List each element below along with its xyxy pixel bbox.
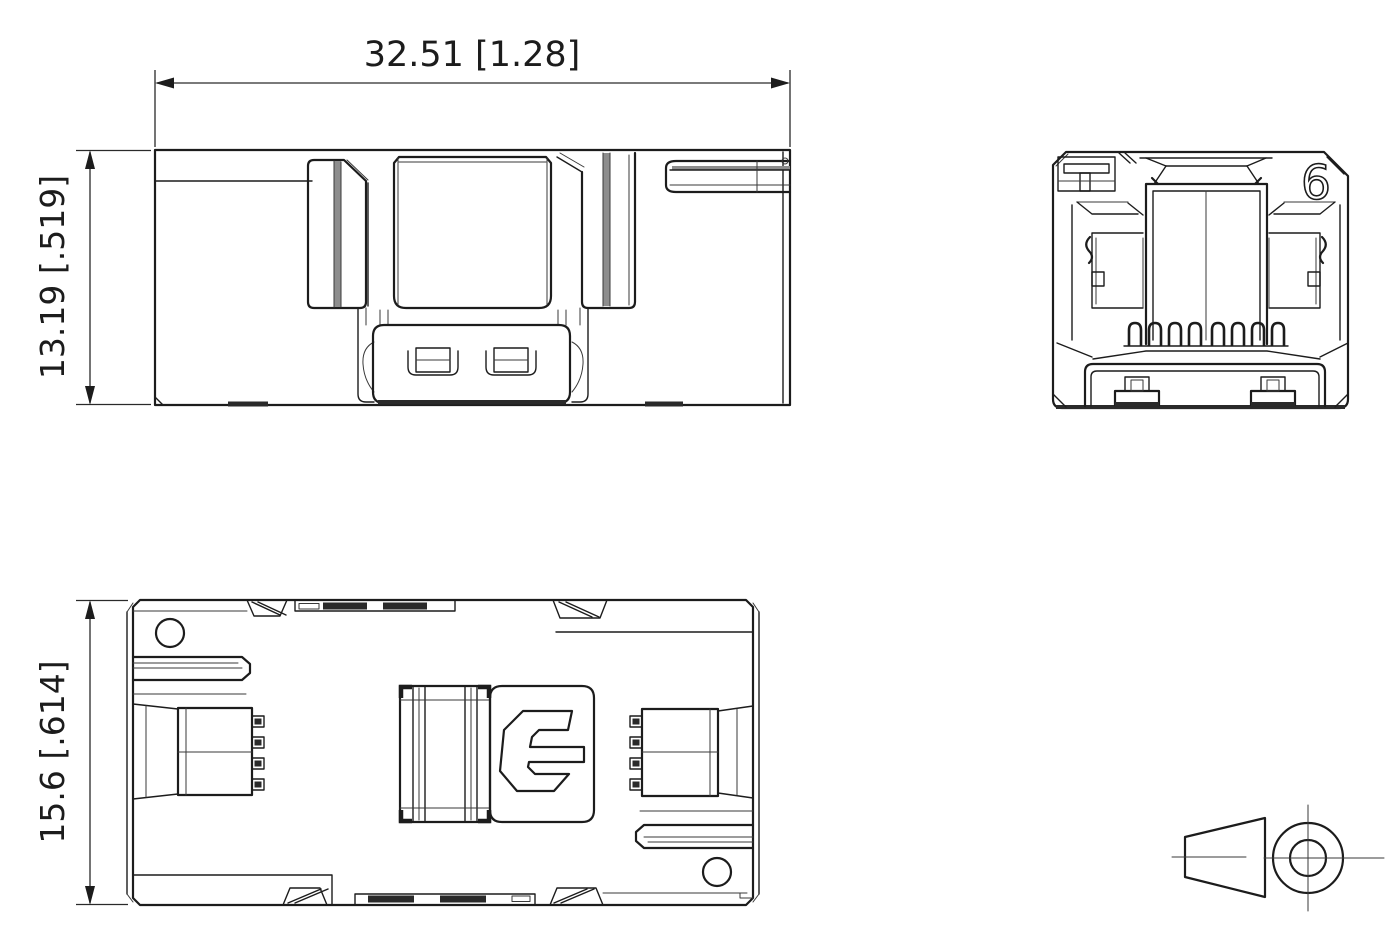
top-recess xyxy=(1140,158,1272,184)
cavity-number-marking: 6 xyxy=(1301,156,1331,211)
dimension-overall-depth: 15.6 [.614] xyxy=(33,600,128,905)
latch-bar xyxy=(666,158,790,192)
bottom-view xyxy=(127,600,759,905)
right-wing xyxy=(1269,202,1348,357)
dimension-overall-width: 32.51 [1.28] xyxy=(155,35,790,147)
center-block xyxy=(394,157,551,308)
left-tooth-block xyxy=(133,704,264,799)
depth-dimension-label: 15.6 [.614] xyxy=(33,660,72,843)
third-angle-projection-symbol xyxy=(1172,805,1384,911)
center-frame xyxy=(400,686,490,822)
mounting-hole-top-left xyxy=(156,619,184,647)
bottom-protrusion xyxy=(373,325,570,405)
modular-jack-technical-drawing: 32.51 [1.28] 13.19 [.519] 15.6 [.614] xyxy=(0,0,1400,934)
top-left-boss xyxy=(1058,153,1136,191)
right-tooth-block xyxy=(630,706,753,798)
left-post xyxy=(308,160,368,308)
dimension-overall-height: 13.19 [.519] xyxy=(33,150,151,405)
front-view: 6 xyxy=(1053,152,1348,409)
bottom-edge-features xyxy=(133,875,753,905)
width-dimension-label: 32.51 [1.28] xyxy=(364,35,581,75)
brand-c-logo-icon xyxy=(500,711,584,791)
top-edge-features xyxy=(133,600,753,632)
engineering-drawing-page: 32.51 [1.28] 13.19 [.519] 15.6 [.614] xyxy=(0,0,1400,934)
height-dimension-label: 13.19 [.519] xyxy=(33,175,72,379)
side-view-outline xyxy=(155,150,790,405)
bottom-right-rail xyxy=(636,811,753,848)
top-left-rail xyxy=(133,657,250,694)
bottom-band xyxy=(1085,364,1325,406)
side-view xyxy=(155,150,790,407)
mounting-hole-bottom-right xyxy=(703,858,731,886)
logo-pad xyxy=(490,686,594,822)
right-post xyxy=(557,153,635,308)
side-tabs xyxy=(358,308,588,402)
plug-cavity xyxy=(1146,184,1267,344)
